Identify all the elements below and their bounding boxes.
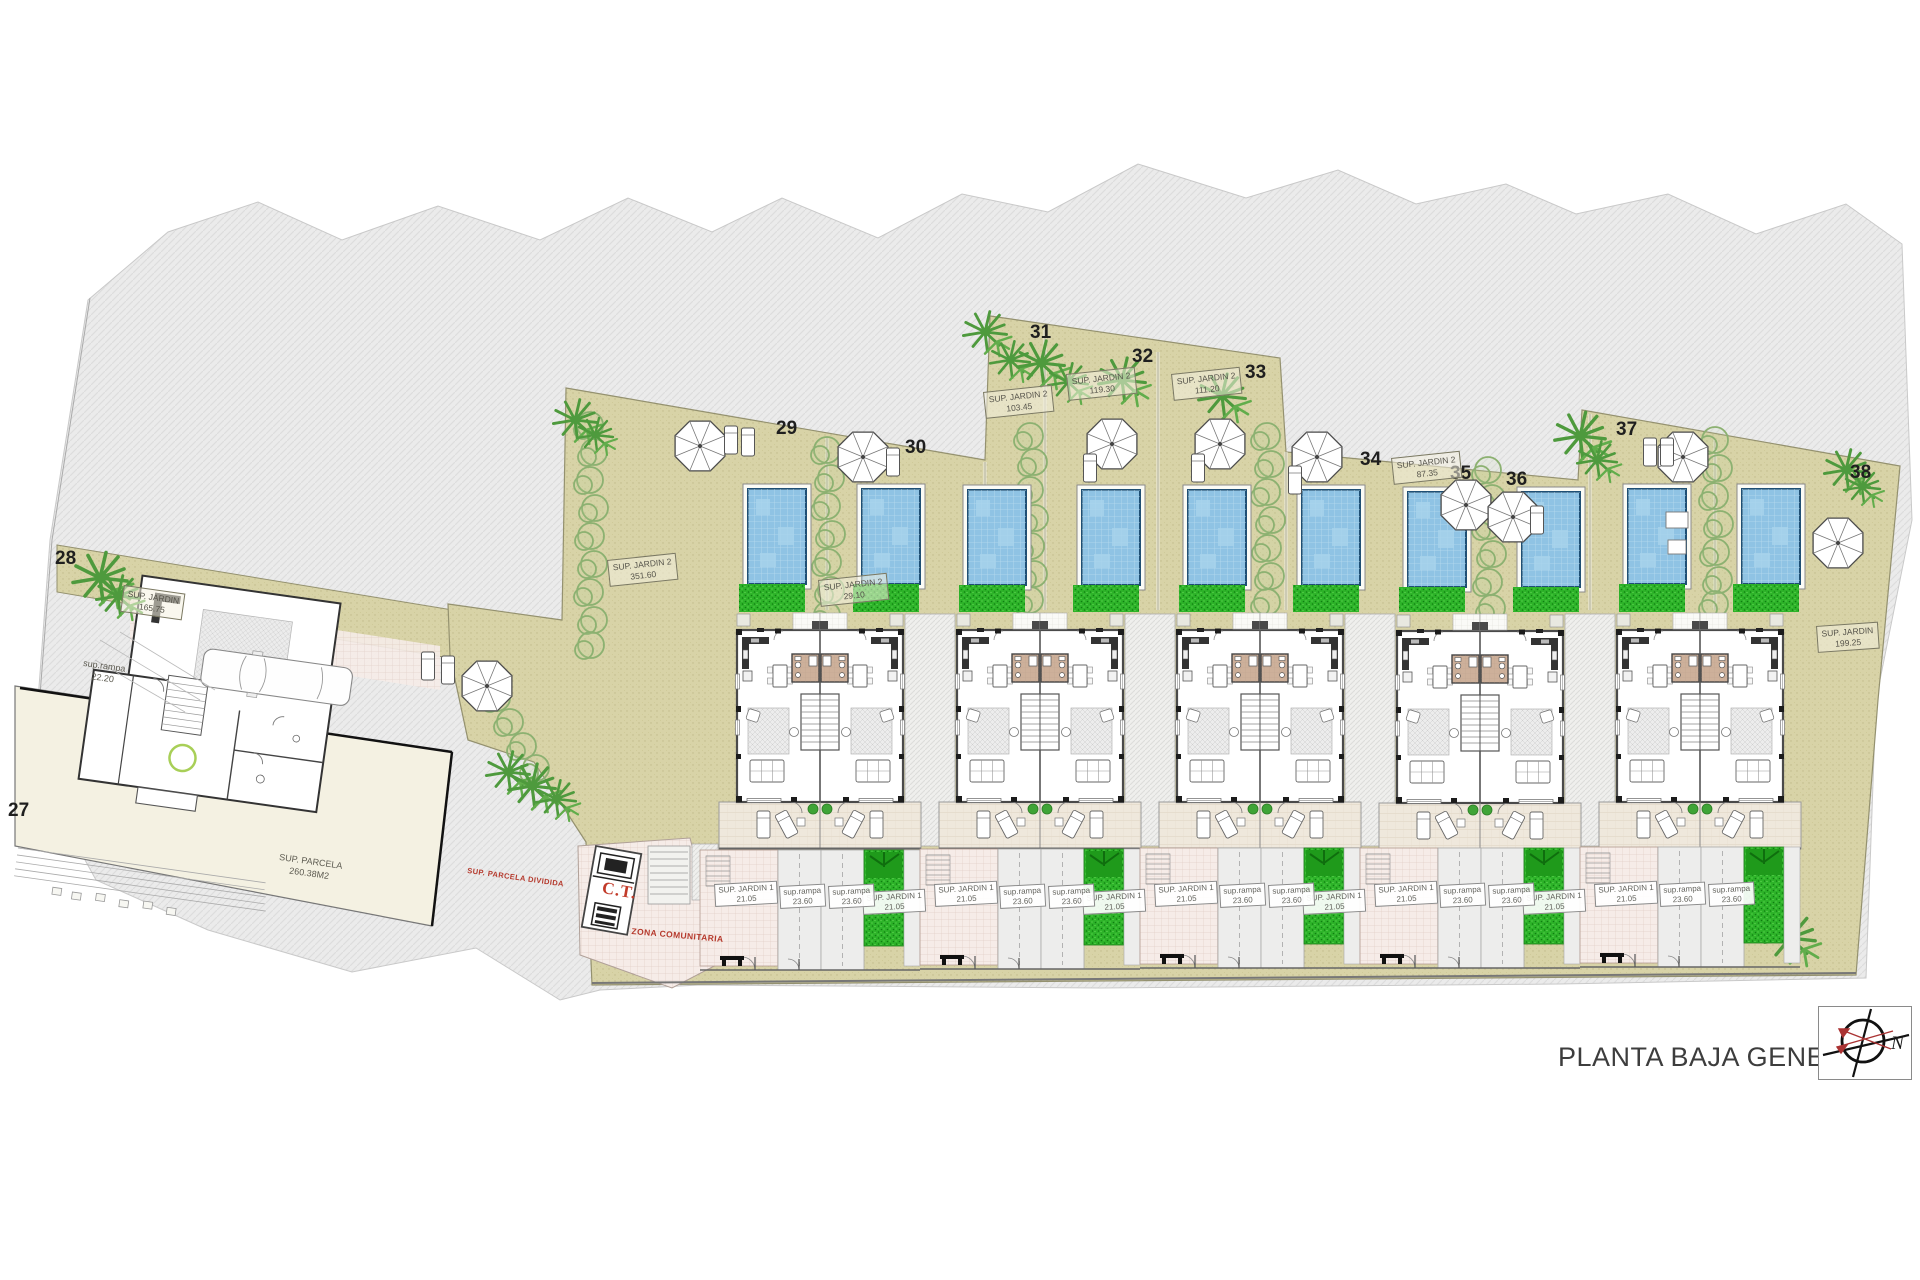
label-line1: sup.rampa xyxy=(783,886,821,898)
label-line1: sup.rampa xyxy=(1052,886,1090,898)
rear-yards xyxy=(592,847,1856,983)
label-jardin1-5: SUP. JARDIN 1 21.05 xyxy=(1594,881,1659,907)
label-line1: sup.rampa xyxy=(1003,886,1041,898)
site-plan-drawing xyxy=(0,0,1920,1280)
pool-29 xyxy=(743,484,811,589)
label-line2: 23.60 xyxy=(784,895,822,907)
label-line2: 23.60 xyxy=(1224,894,1262,906)
label-jardin1-2: SUP. JARDIN 1 21.05 xyxy=(934,881,999,907)
label-rampa-1: sup.rampa 23.60 xyxy=(779,884,826,910)
plot-number-30: 30 xyxy=(905,437,926,459)
plot-number-32: 32 xyxy=(1132,346,1153,368)
label-rampa-10: sup.rampa 23.60 xyxy=(1708,882,1755,908)
villa-block-35-36 xyxy=(1379,614,1581,850)
label-jardin1-3: SUP. JARDIN 1 21.05 xyxy=(1154,881,1219,907)
site-plan-page: 27 28 29 30 31 32 33 34 35 36 37 38 SUP.… xyxy=(0,0,1920,1280)
label-line2: 23.60 xyxy=(1713,893,1751,905)
pool-33 xyxy=(1183,485,1251,590)
villa-block-29-30 xyxy=(719,613,921,849)
plot-number-38: 38 xyxy=(1850,462,1871,484)
pool-37 xyxy=(1623,484,1691,589)
pool-34 xyxy=(1297,485,1365,590)
plot-number-31: 31 xyxy=(1030,322,1051,344)
north-label: N xyxy=(1891,1033,1904,1055)
label-rampa-5: sup.rampa 23.60 xyxy=(1219,883,1266,909)
label-line2: 23.60 xyxy=(833,895,871,907)
pool-31 xyxy=(963,485,1031,590)
villa-block-33-34 xyxy=(1159,613,1361,849)
label-rampa-9: sup.rampa 23.60 xyxy=(1659,882,1706,908)
label-jardin1-4: SUP. JARDIN 1 21.05 xyxy=(1374,881,1439,907)
villa-blocks xyxy=(719,613,1801,850)
label-line2: 23.60 xyxy=(1053,895,1091,907)
plot-number-36: 36 xyxy=(1506,469,1527,491)
label-rampa-2: sup.rampa 23.60 xyxy=(828,884,875,910)
label-line2: 23.60 xyxy=(1664,893,1702,905)
label-line2: 23.60 xyxy=(1004,895,1042,907)
label-line1: sup.rampa xyxy=(832,886,870,898)
label-line2: 23.60 xyxy=(1493,894,1531,906)
label-rampa-7: sup.rampa 23.60 xyxy=(1439,883,1486,909)
label-rampa-8: sup.rampa 23.60 xyxy=(1488,883,1535,909)
label-rampa-4: sup.rampa 23.60 xyxy=(1048,884,1095,910)
label-line1: sup.rampa xyxy=(1492,885,1530,897)
label-rampa-3: sup.rampa 23.60 xyxy=(999,884,1046,910)
label-line1: sup.rampa xyxy=(1663,884,1701,896)
label-line1: sup.rampa xyxy=(1712,884,1750,896)
villa-block-37-38 xyxy=(1599,613,1801,849)
villa-block-31-32 xyxy=(939,613,1141,849)
pool-38 xyxy=(1737,484,1805,589)
pool-32 xyxy=(1077,485,1145,590)
compass-rose: N xyxy=(1818,1006,1912,1080)
label-line1: sup.rampa xyxy=(1272,885,1310,897)
plot-number-37: 37 xyxy=(1616,419,1637,441)
plot-number-33: 33 xyxy=(1245,362,1266,384)
area-label-jardin-38: SUP. JARDIN 199.25 xyxy=(1816,622,1880,653)
label-line1: sup.rampa xyxy=(1223,885,1261,897)
label-line2: 23.60 xyxy=(1273,894,1311,906)
label-line1: sup.rampa xyxy=(1443,885,1481,897)
plot-number-27: 27 xyxy=(8,800,29,822)
plot-number-34: 34 xyxy=(1360,449,1381,471)
pool-30 xyxy=(857,484,925,589)
plot-number-28: 28 xyxy=(55,548,76,570)
plot-number-29: 29 xyxy=(776,418,797,440)
label-jardin1-1: SUP. JARDIN 1 21.05 xyxy=(714,881,779,907)
label-line2: 23.60 xyxy=(1444,894,1482,906)
label-rampa-6: sup.rampa 23.60 xyxy=(1268,883,1315,909)
